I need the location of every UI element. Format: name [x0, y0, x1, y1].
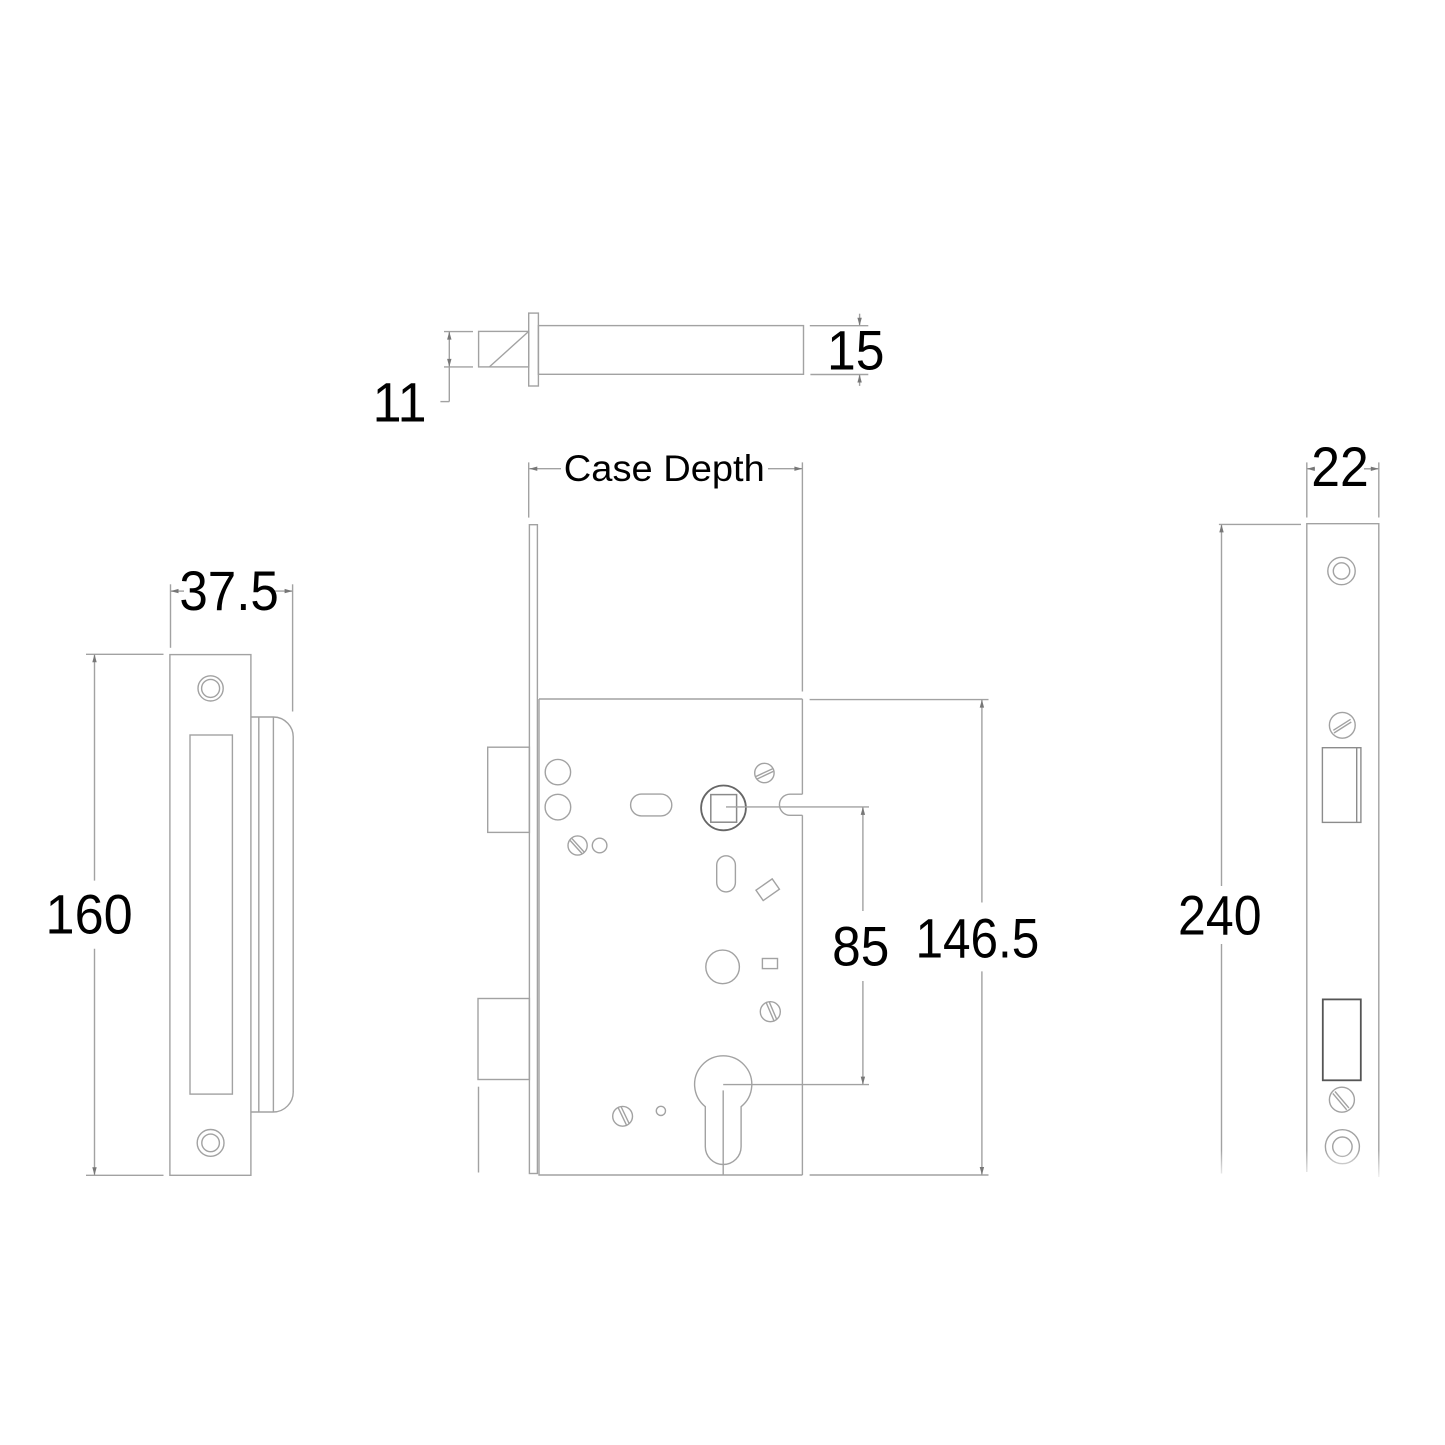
svg-text:240: 240 — [1178, 885, 1262, 947]
svg-text:Case Depth: Case Depth — [564, 447, 765, 489]
svg-text:11: 11 — [373, 371, 427, 433]
svg-text:146.5: 146.5 — [915, 907, 1039, 969]
svg-text:15: 15 — [827, 319, 885, 381]
svg-text:85: 85 — [832, 916, 889, 978]
svg-text:22: 22 — [1311, 436, 1369, 498]
svg-text:160: 160 — [46, 884, 133, 946]
svg-text:37.5: 37.5 — [179, 560, 279, 622]
